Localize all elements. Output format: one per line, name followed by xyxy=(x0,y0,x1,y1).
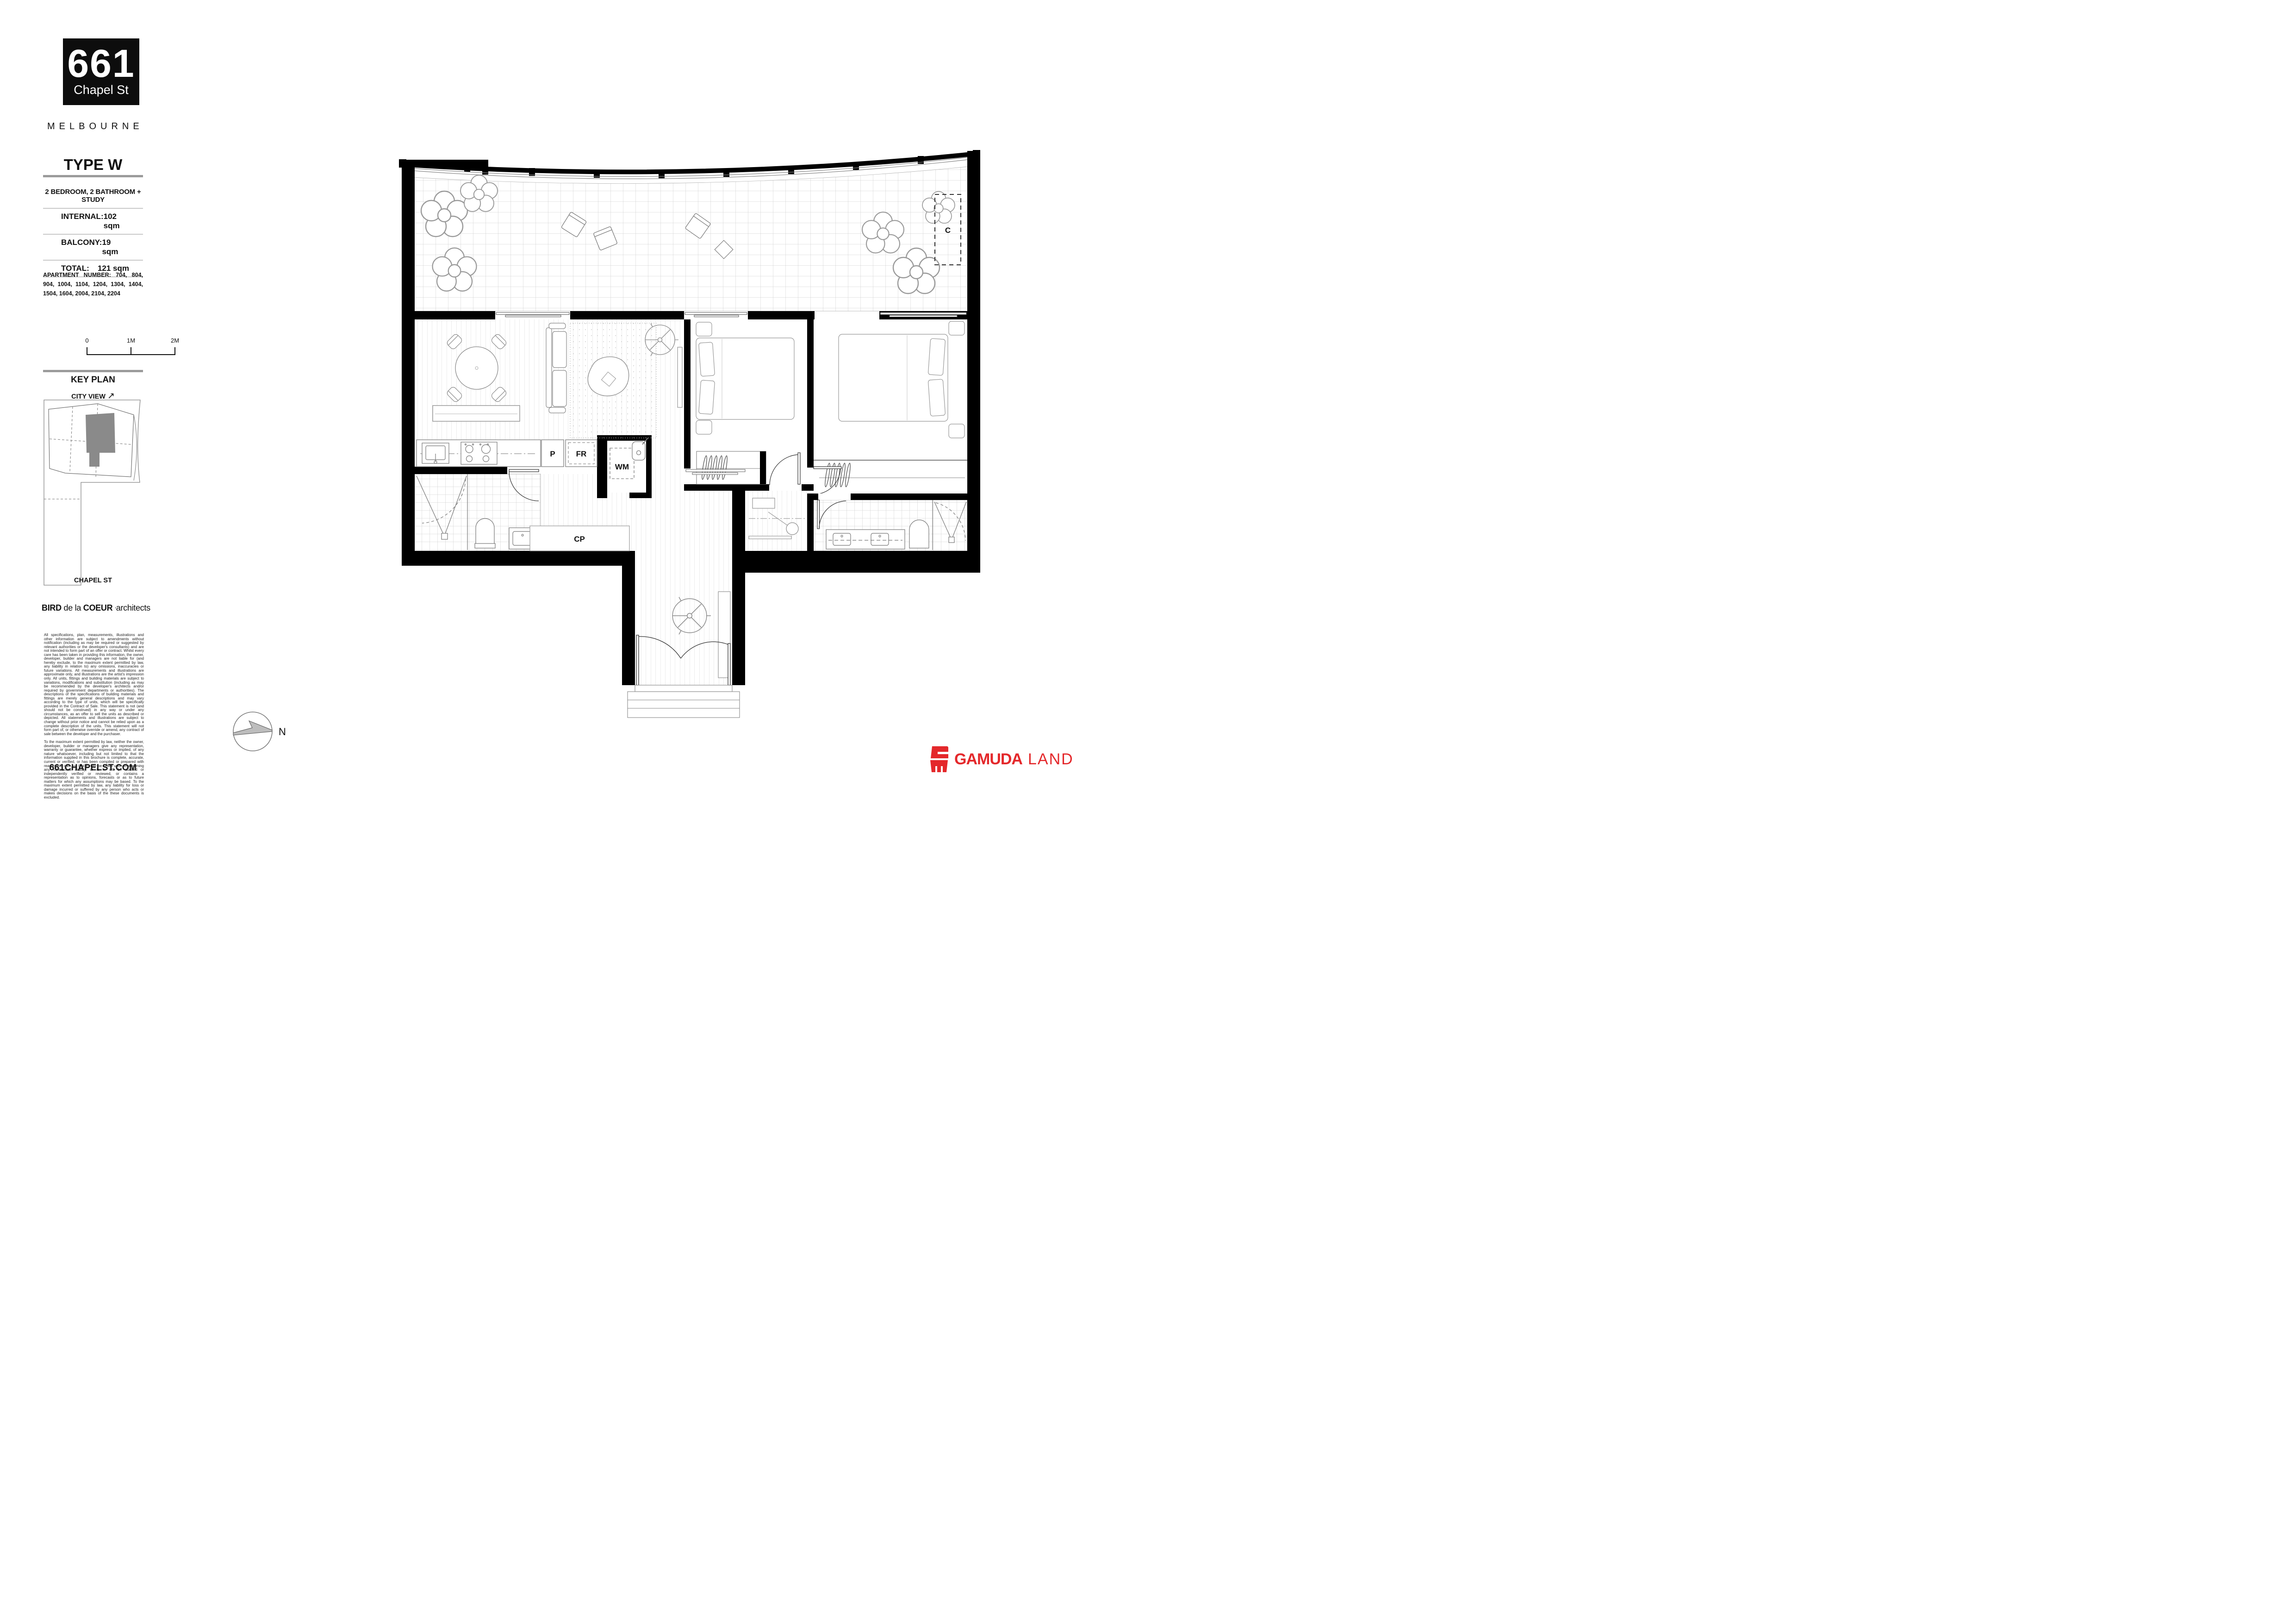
entry-right-wall xyxy=(732,491,745,685)
study-shelf xyxy=(749,536,791,539)
pillow xyxy=(928,338,945,375)
entry-corridor-floor xyxy=(635,551,732,685)
kitchen-stub-wall xyxy=(597,435,607,498)
pendant-light xyxy=(786,523,798,535)
laundry: WM xyxy=(607,438,648,493)
under-bed1-wall-b xyxy=(802,484,814,491)
toilet xyxy=(476,518,494,547)
city-label: MELBOURNE xyxy=(43,121,143,132)
developer-logo: GAMUDA LAND xyxy=(928,746,1074,772)
bedroom1 xyxy=(696,322,794,434)
ensuite2-vanity xyxy=(826,530,905,549)
washer-label: WM xyxy=(615,462,629,471)
bedroom2 xyxy=(839,321,964,438)
cooktop xyxy=(461,442,497,464)
bed1-bed2-wall-a xyxy=(807,319,814,468)
scale-tick-label: 1M xyxy=(127,337,135,344)
curved-facade-wall xyxy=(402,151,980,174)
compass-n-label: N xyxy=(279,726,286,737)
condenser-label: C xyxy=(945,226,951,235)
hall-floor xyxy=(652,435,684,491)
kitchen-island xyxy=(433,406,520,421)
logo-street: Chapel St xyxy=(74,83,129,97)
website-text: 661CHAPELST.COM xyxy=(43,763,143,773)
configuration-label: 2 BEDROOM, 2 BATHROOM + STUDY xyxy=(40,188,146,204)
scale-tick-label: 0 xyxy=(85,337,88,344)
divider xyxy=(43,370,143,372)
nightstand xyxy=(696,322,712,336)
entry-left-wall xyxy=(622,566,635,685)
bed1-bed2-wall-b xyxy=(807,493,814,551)
key-plan-drawing xyxy=(43,399,143,586)
scale-tick-label: 2M xyxy=(171,337,179,344)
north-compass: N xyxy=(231,708,294,756)
compass-needle-icon xyxy=(233,721,272,735)
brochure-page: 661 Chapel St MELBOURNE TYPE W 2 BEDROOM… xyxy=(0,0,1148,812)
bed2-door xyxy=(814,467,841,494)
architect-word: BIRD xyxy=(42,603,62,612)
pillow xyxy=(699,380,715,414)
floor-plan: C xyxy=(398,148,983,757)
facade-step xyxy=(482,160,488,175)
architect-logo: BIRD de la COEUR ,architects xyxy=(42,603,148,613)
table-row: INTERNAL: 102 sqm xyxy=(43,208,143,234)
pillow xyxy=(699,342,715,376)
entry-threshold xyxy=(628,685,740,718)
nightstand xyxy=(949,321,964,335)
bed2-walkin-robe xyxy=(814,460,967,487)
divider xyxy=(43,175,143,177)
area-label: INTERNAL: xyxy=(61,212,104,231)
area-value: 19 sqm xyxy=(102,238,129,256)
legal-disclaimer: All specifications, plan, measurements, … xyxy=(44,633,144,804)
ensuite2-toilet xyxy=(909,520,929,548)
laundry-right-wall xyxy=(646,435,652,498)
cupboard-label: CP xyxy=(574,535,585,543)
pantry-label: P xyxy=(550,450,555,458)
kitchen-sink xyxy=(422,443,449,463)
living-bed1-wall xyxy=(684,319,691,468)
architect-word: de la xyxy=(64,603,81,612)
area-value: 102 sqm xyxy=(104,212,129,231)
nightstand xyxy=(696,420,712,434)
kitchen: P FR xyxy=(417,440,597,467)
pillow xyxy=(928,379,945,416)
disclaimer-paragraph: All specifications, plan, measurements, … xyxy=(44,633,144,736)
nightstand xyxy=(949,424,964,438)
plan-type-title: TYPE W xyxy=(43,156,143,174)
scale-bar-line xyxy=(87,347,175,355)
architect-word: COEUR xyxy=(83,603,113,612)
architect-word: architects xyxy=(116,603,150,612)
bathroom1-top-wall xyxy=(415,467,507,474)
dining-table xyxy=(455,347,498,389)
bed1-door xyxy=(770,453,800,485)
apartment-numbers: APARTMENT NUMBER: 704, 804, 904, 1004, 1… xyxy=(43,270,143,299)
area-table: INTERNAL: 102 sqm BALCONY: 19 sqm TOTAL:… xyxy=(43,208,143,277)
developer-name-light: LAND xyxy=(1028,750,1074,768)
project-logo: 661 Chapel St xyxy=(63,38,139,105)
developer-name-bold: GAMUDA xyxy=(954,750,1022,768)
right-exterior-wall xyxy=(967,151,980,573)
ensuite2-door-leaf xyxy=(817,500,820,529)
under-bed1-wall-a xyxy=(684,484,769,491)
study-desk xyxy=(753,498,775,508)
tv-console xyxy=(678,347,682,407)
gamuda-monogram-icon xyxy=(928,746,950,772)
bottom-right-wall xyxy=(732,551,980,573)
chapel-st-label: CHAPEL ST xyxy=(43,577,143,584)
study-hall-floor xyxy=(541,491,807,527)
area-label: BALCONY: xyxy=(61,238,102,256)
bottom-left-wall xyxy=(402,551,635,566)
scale-bar: 0 1M 2M xyxy=(69,335,190,359)
table-row: BALCONY: 19 sqm xyxy=(43,234,143,260)
fridge-label: FR xyxy=(576,450,587,458)
balcony-sliding-doors xyxy=(496,312,966,317)
left-exterior-wall xyxy=(402,160,415,566)
bed1-wardrobe xyxy=(697,451,766,484)
logo-number: 661 xyxy=(67,46,135,81)
laundry-bottom-wall xyxy=(629,493,652,498)
bath1-door-leaf xyxy=(509,469,539,472)
study-slider xyxy=(686,469,745,475)
key-plan-title: KEY PLAN xyxy=(43,375,143,385)
